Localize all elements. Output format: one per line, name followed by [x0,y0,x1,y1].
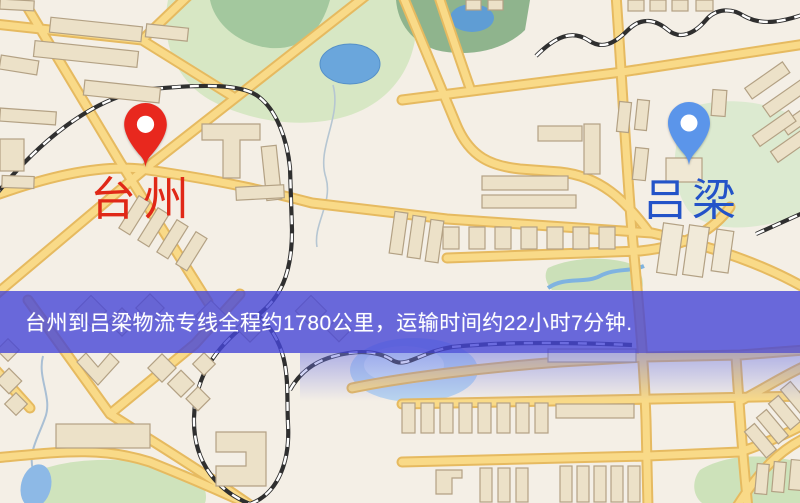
origin-label: 台州 [90,176,196,222]
map-canvas [0,0,800,503]
destination-pin[interactable] [666,101,712,167]
map-screenshot: 台州 吕梁 台州到吕梁物流专线全程约1780公里，运输时间约22小时7分钟. [0,0,800,503]
route-info-text: 台州到吕梁物流专线全程约1780公里，运输时间约22小时7分钟. [0,307,633,337]
banner-fade-veil [300,353,800,401]
destination-label: 吕梁 [643,179,741,223]
destination-pin-icon [666,101,712,167]
origin-pin[interactable] [123,102,168,169]
route-info-banner: 台州到吕梁物流专线全程约1780公里，运输时间约22小时7分钟. [0,291,800,353]
origin-pin-icon [123,102,168,169]
